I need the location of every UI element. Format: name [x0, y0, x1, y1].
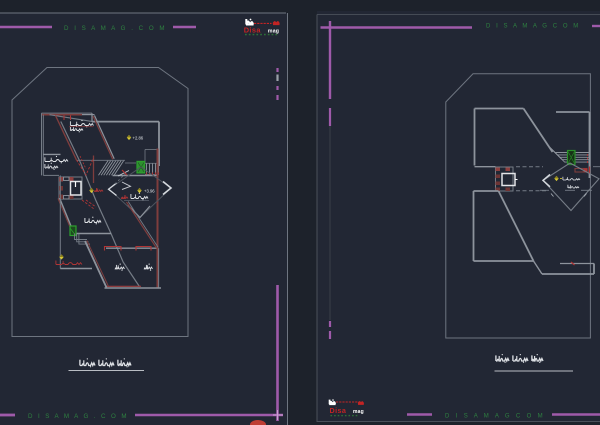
svg-text:D I S A M A G C O M: D I S A M A G C O M: [486, 23, 580, 29]
svg-text:D I S A M A G C O M: D I S A M A G C O M: [445, 413, 545, 419]
svg-text:+2.86: +2.86: [133, 135, 144, 140]
svg-text:mag: mag: [353, 409, 364, 415]
svg-text:mag: mag: [268, 29, 279, 35]
svg-text:D I S A M A G . C O M: D I S A M A G . C O M: [64, 25, 167, 32]
svg-text:Disa: Disa: [244, 25, 262, 34]
svg-text:+3.96: +3.96: [144, 188, 155, 193]
svg-text:D I S A M A G . C O M: D I S A M A G . C O M: [28, 413, 128, 420]
svg-text:Disa: Disa: [330, 406, 347, 415]
